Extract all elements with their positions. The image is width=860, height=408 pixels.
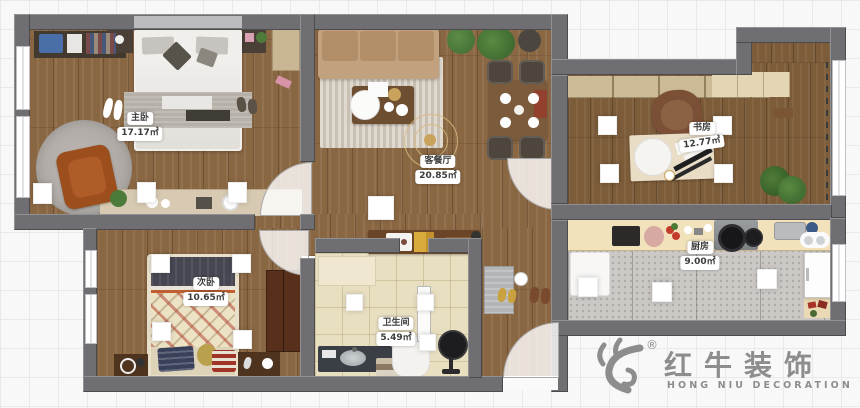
utensil-gray — [694, 228, 703, 235]
brand-subtitle: HONG NIU DECORATION — [667, 380, 853, 391]
nightstand-lamp — [115, 35, 124, 44]
room-name: 书房 — [689, 122, 715, 135]
study-shelf — [712, 72, 790, 97]
wall-master-living — [300, 14, 315, 162]
green-item — [810, 310, 817, 317]
ceiling-light — [714, 164, 733, 183]
greens — [671, 223, 678, 230]
dresser-plant — [110, 190, 127, 207]
curtain-strip — [134, 16, 242, 28]
bull-icon — [592, 336, 654, 396]
toy-navy — [157, 346, 195, 372]
wall-bath-entry — [468, 238, 482, 378]
table-flowers — [514, 105, 524, 115]
sink-basin — [340, 350, 366, 366]
runner-white-band — [162, 96, 212, 109]
wall-top — [14, 14, 555, 30]
pot-large — [718, 224, 746, 252]
ceiling-light — [152, 322, 171, 341]
tray-bowl-1 — [804, 236, 813, 245]
ceiling-light — [652, 282, 672, 302]
room-area: 5.49㎡ — [376, 332, 415, 345]
gold-plate — [388, 88, 401, 101]
coffee-cup-1 — [384, 102, 394, 112]
sofa-cushion-3 — [398, 31, 434, 61]
dining-chair-2 — [519, 60, 545, 84]
ceiling-light — [151, 254, 170, 273]
corner-cabinet — [272, 29, 300, 71]
pink-pot — [644, 226, 664, 247]
coffee-table-tray — [368, 82, 388, 97]
sofa-cushion-1 — [322, 31, 358, 61]
plate-4 — [528, 117, 539, 128]
wall-spine-upper — [551, 75, 568, 204]
wall-kitchen-bottom — [551, 320, 846, 336]
window-bed2-2 — [85, 294, 97, 344]
plate-1 — [500, 93, 511, 104]
second-wardrobe — [266, 270, 302, 352]
registered-mark: ® — [646, 338, 658, 352]
nightstand2-ring — [120, 358, 136, 374]
cup-small — [684, 226, 692, 234]
nightstand2-plate — [262, 358, 273, 369]
room-area: 9.00㎡ — [680, 256, 719, 269]
bathroom-cabinet — [318, 256, 376, 286]
faucet — [352, 347, 357, 352]
ceiling-light — [233, 330, 252, 349]
ceiling-light — [757, 269, 777, 289]
ceiling-light — [232, 254, 251, 273]
small-plant — [256, 32, 267, 43]
wall-bath-top-left — [315, 238, 400, 253]
tray-bowl-2 — [816, 236, 825, 245]
ceiling-light — [346, 294, 363, 311]
ceiling-light — [228, 182, 247, 203]
ceiling-light — [137, 182, 156, 203]
dining-chair-4 — [519, 136, 545, 160]
folded-clothes-blue — [39, 34, 63, 53]
room-area: 20.85㎡ — [415, 170, 460, 183]
runner-dark-band — [186, 110, 230, 121]
potted-plant-large — [477, 26, 515, 60]
shoe-right — [247, 99, 257, 115]
room-area: 17.17㎡ — [117, 127, 162, 140]
room-name: 次卧 — [193, 277, 219, 290]
fan-head — [438, 330, 468, 360]
plate-3 — [500, 117, 511, 128]
pouf — [518, 29, 541, 52]
floorplan-canvas: 主卧 17.17㎡ 客餐厅 20.85㎡ 书房 12.77㎡ 次卧 10.65㎡… — [0, 0, 860, 408]
console-rosette-2 — [401, 239, 407, 245]
ceiling-light — [419, 334, 436, 351]
room-name: 主卧 — [127, 112, 153, 125]
room-name: 厨房 — [687, 241, 713, 254]
room-label-bathroom: 卫生间 5.49㎡ — [376, 317, 415, 346]
plate-2 — [528, 93, 539, 104]
soap-tray — [322, 350, 336, 358]
wall-bed2-bath — [300, 258, 315, 378]
striped-blanket-roll — [212, 350, 236, 372]
pink-box — [245, 33, 254, 42]
brand-name: 红牛装饰 — [664, 344, 824, 384]
dining-chair-3 — [487, 136, 513, 160]
coffee-cup-2 — [396, 104, 408, 116]
room-label-bedroom2: 次卧 10.65㎡ — [183, 277, 228, 306]
dining-chair-1 — [487, 60, 513, 84]
ceiling-light — [417, 294, 434, 311]
ceiling-light — [600, 164, 619, 183]
study-floor-notch — [749, 43, 832, 63]
window-track — [826, 62, 828, 214]
tomato-2 — [672, 232, 680, 240]
potted-plant-small — [447, 26, 475, 54]
ceiling-light — [598, 116, 617, 135]
brand-logo: ® 红牛装饰 HONG NIU DECORATION — [592, 336, 852, 402]
wall-kitchen-top — [551, 204, 832, 220]
room-label-living: 客餐厅 20.85㎡ — [415, 155, 460, 184]
window-bed2-1 — [85, 250, 97, 288]
pot-small — [744, 228, 763, 247]
chandelier-center — [424, 134, 436, 146]
window-master-2 — [16, 116, 30, 198]
sofa-cushion-2 — [360, 31, 396, 61]
room-name: 卫生间 — [378, 317, 413, 330]
study-stool — [773, 108, 793, 118]
window-master-1 — [16, 46, 30, 110]
wall-mid-pier — [300, 214, 315, 230]
folded-clothes-white — [67, 34, 82, 53]
room-area: 10.65㎡ — [183, 292, 228, 305]
room-name: 客餐厅 — [420, 155, 455, 168]
fridge-handle — [806, 268, 809, 281]
entry-threshold — [503, 376, 558, 390]
bowl-small — [704, 224, 712, 232]
room-label-master: 主卧 17.17㎡ — [117, 112, 162, 141]
window-study — [832, 60, 846, 196]
study-plant-2 — [778, 176, 806, 204]
room-label-kitchen: 厨房 9.00㎡ — [680, 241, 719, 270]
fan-base — [442, 369, 460, 374]
wall-mid — [14, 214, 255, 230]
wall-bottom — [83, 376, 503, 392]
room-label-study: 书房 12.77㎡ — [679, 122, 724, 151]
ceiling-light — [578, 277, 598, 297]
nightstand2-dot — [136, 358, 145, 367]
dresser-plate-small — [161, 199, 170, 208]
hanging-clothes — [86, 33, 116, 54]
desk-cup — [664, 170, 675, 181]
microwave — [612, 226, 640, 246]
entry-stool — [514, 272, 528, 286]
wall-study-top — [551, 59, 749, 75]
dresser-tray — [196, 197, 212, 209]
ceiling-light — [33, 183, 52, 204]
window-kitchen — [832, 244, 846, 302]
ceiling-light — [368, 196, 394, 220]
